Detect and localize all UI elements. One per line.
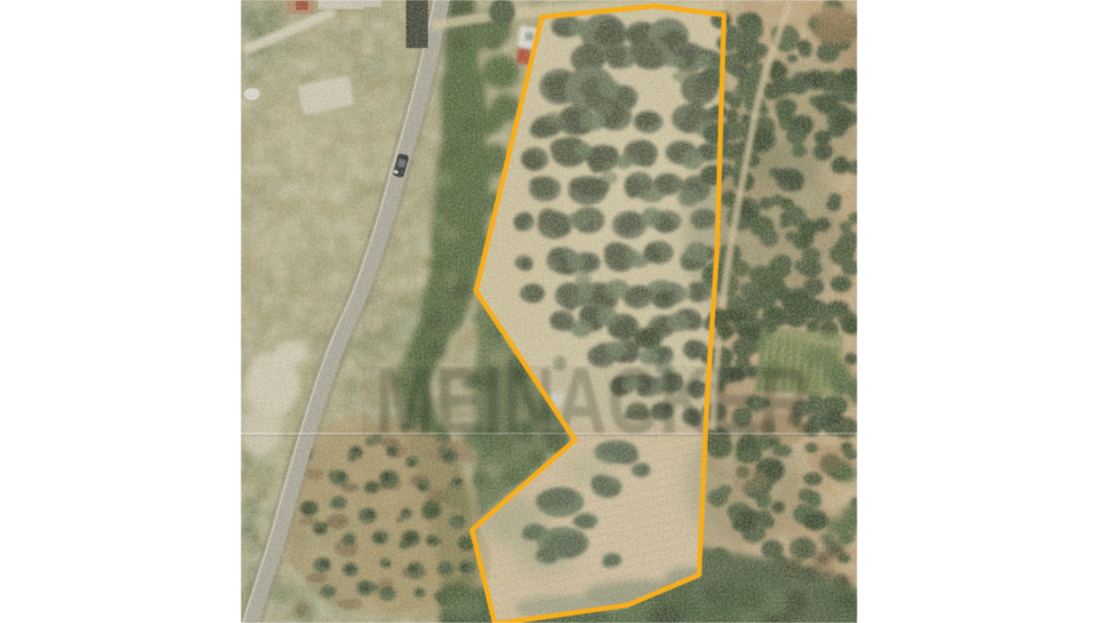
svg-text:MEINACKER: MEINACKER — [375, 348, 811, 453]
